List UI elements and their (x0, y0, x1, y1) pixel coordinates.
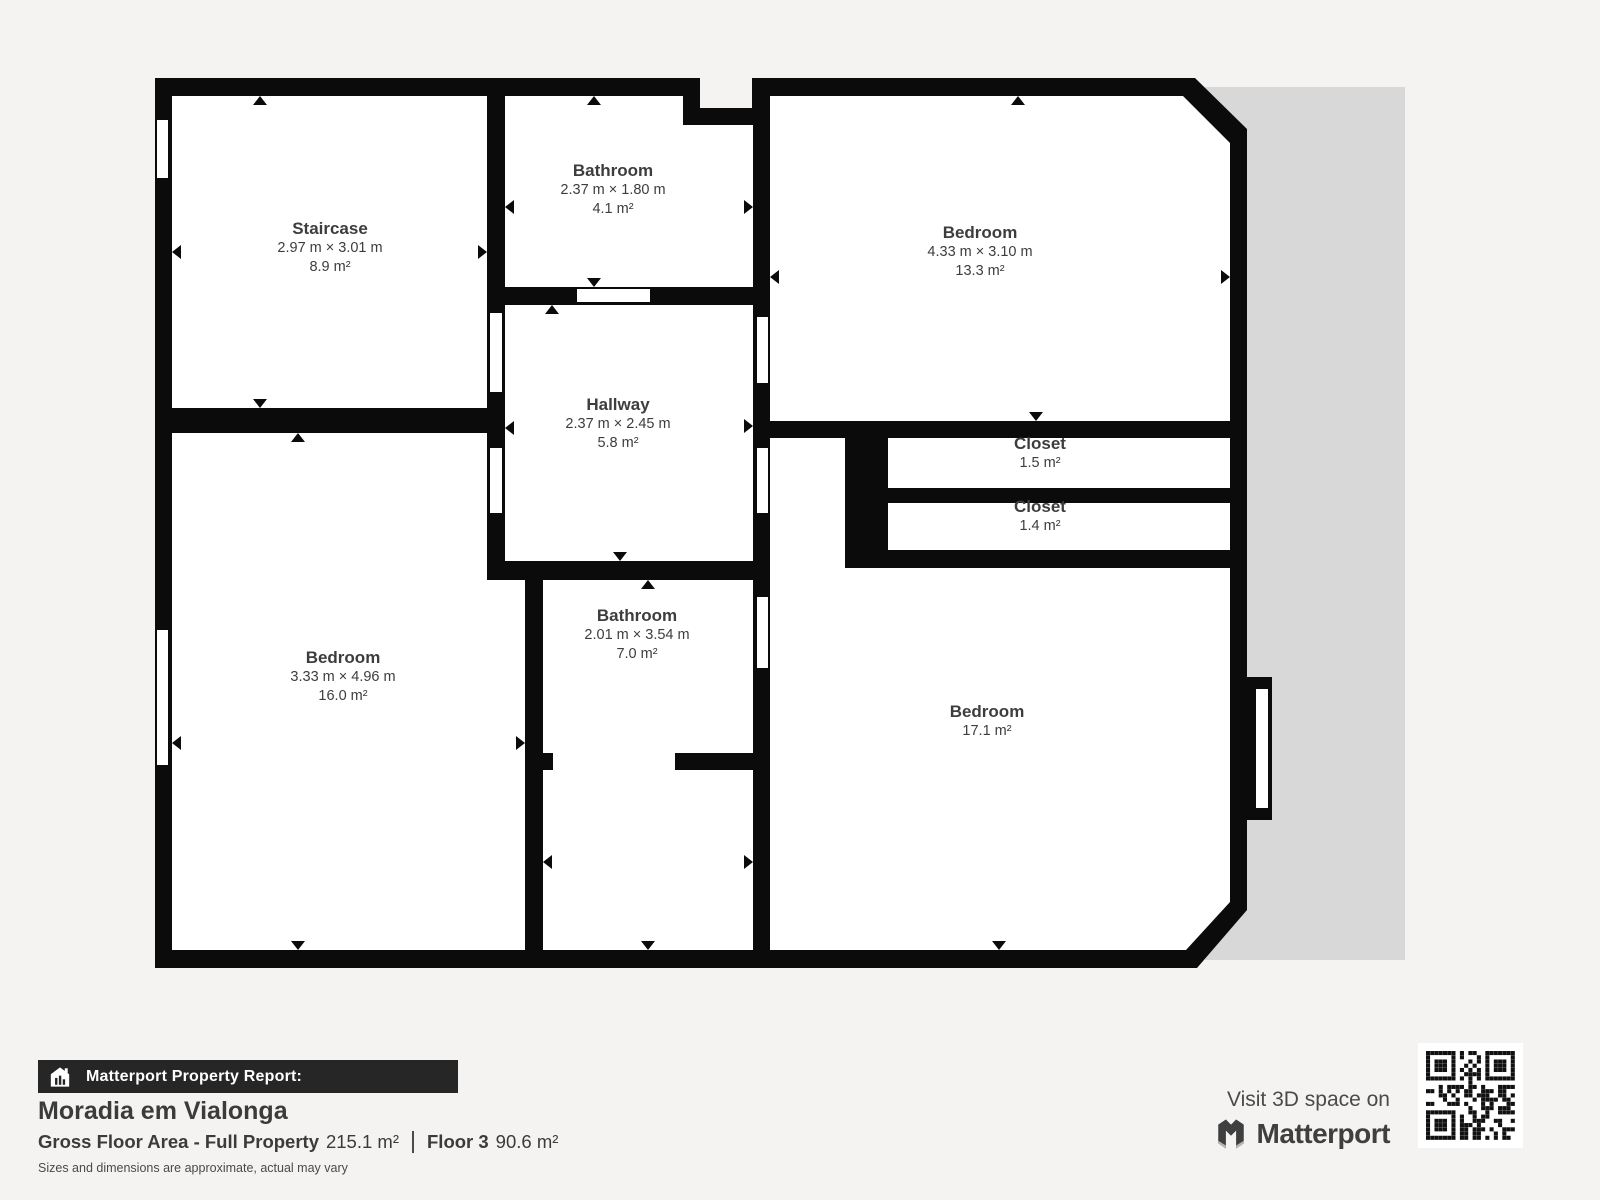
gross-floor-area-value: 215.1 m² (326, 1130, 399, 1154)
disclaimer-text: Sizes and dimensions are approximate, ac… (38, 1161, 348, 1175)
visit-3d-space-text: Visit 3D space on (1214, 1088, 1390, 1112)
matterport-wordmark: Matterport (1257, 1118, 1390, 1150)
floorplan-canvas (0, 0, 1600, 1200)
floor-label: Floor 3 (427, 1130, 489, 1154)
gross-floor-area-label: Gross Floor Area - Full Property (38, 1130, 319, 1154)
report-label: Matterport Property Report: (86, 1068, 302, 1086)
property-name: Moradia em Vialonga (38, 1096, 288, 1126)
room-floor-closet-1 (888, 438, 1230, 488)
room-floor-hallway (505, 305, 753, 561)
qr-code (1418, 1043, 1523, 1148)
matterport-logo: Matterport (1214, 1117, 1390, 1151)
house-icon (49, 1066, 71, 1088)
area-summary: Gross Floor Area - Full Property 215.1 m… (38, 1130, 558, 1154)
room-floor-staircase (172, 96, 487, 408)
room-floor-bedroom-bottom-left (172, 433, 525, 950)
qr-code-pattern (1418, 1043, 1523, 1148)
divider (412, 1131, 414, 1153)
room-floor-bedroom-top-right (770, 96, 1230, 421)
matterport-floorplan-report: Staircase 2.97 m × 3.01 m 8.9 m² Bathroo… (0, 0, 1600, 1200)
report-header-bar: Matterport Property Report: (38, 1060, 458, 1093)
room-floor-closet-2 (888, 503, 1230, 550)
visit-3d-space-block: Visit 3D space on Matterport (1214, 1088, 1390, 1151)
floor-area-value: 90.6 m² (496, 1130, 559, 1154)
matterport-logo-icon (1214, 1117, 1248, 1151)
